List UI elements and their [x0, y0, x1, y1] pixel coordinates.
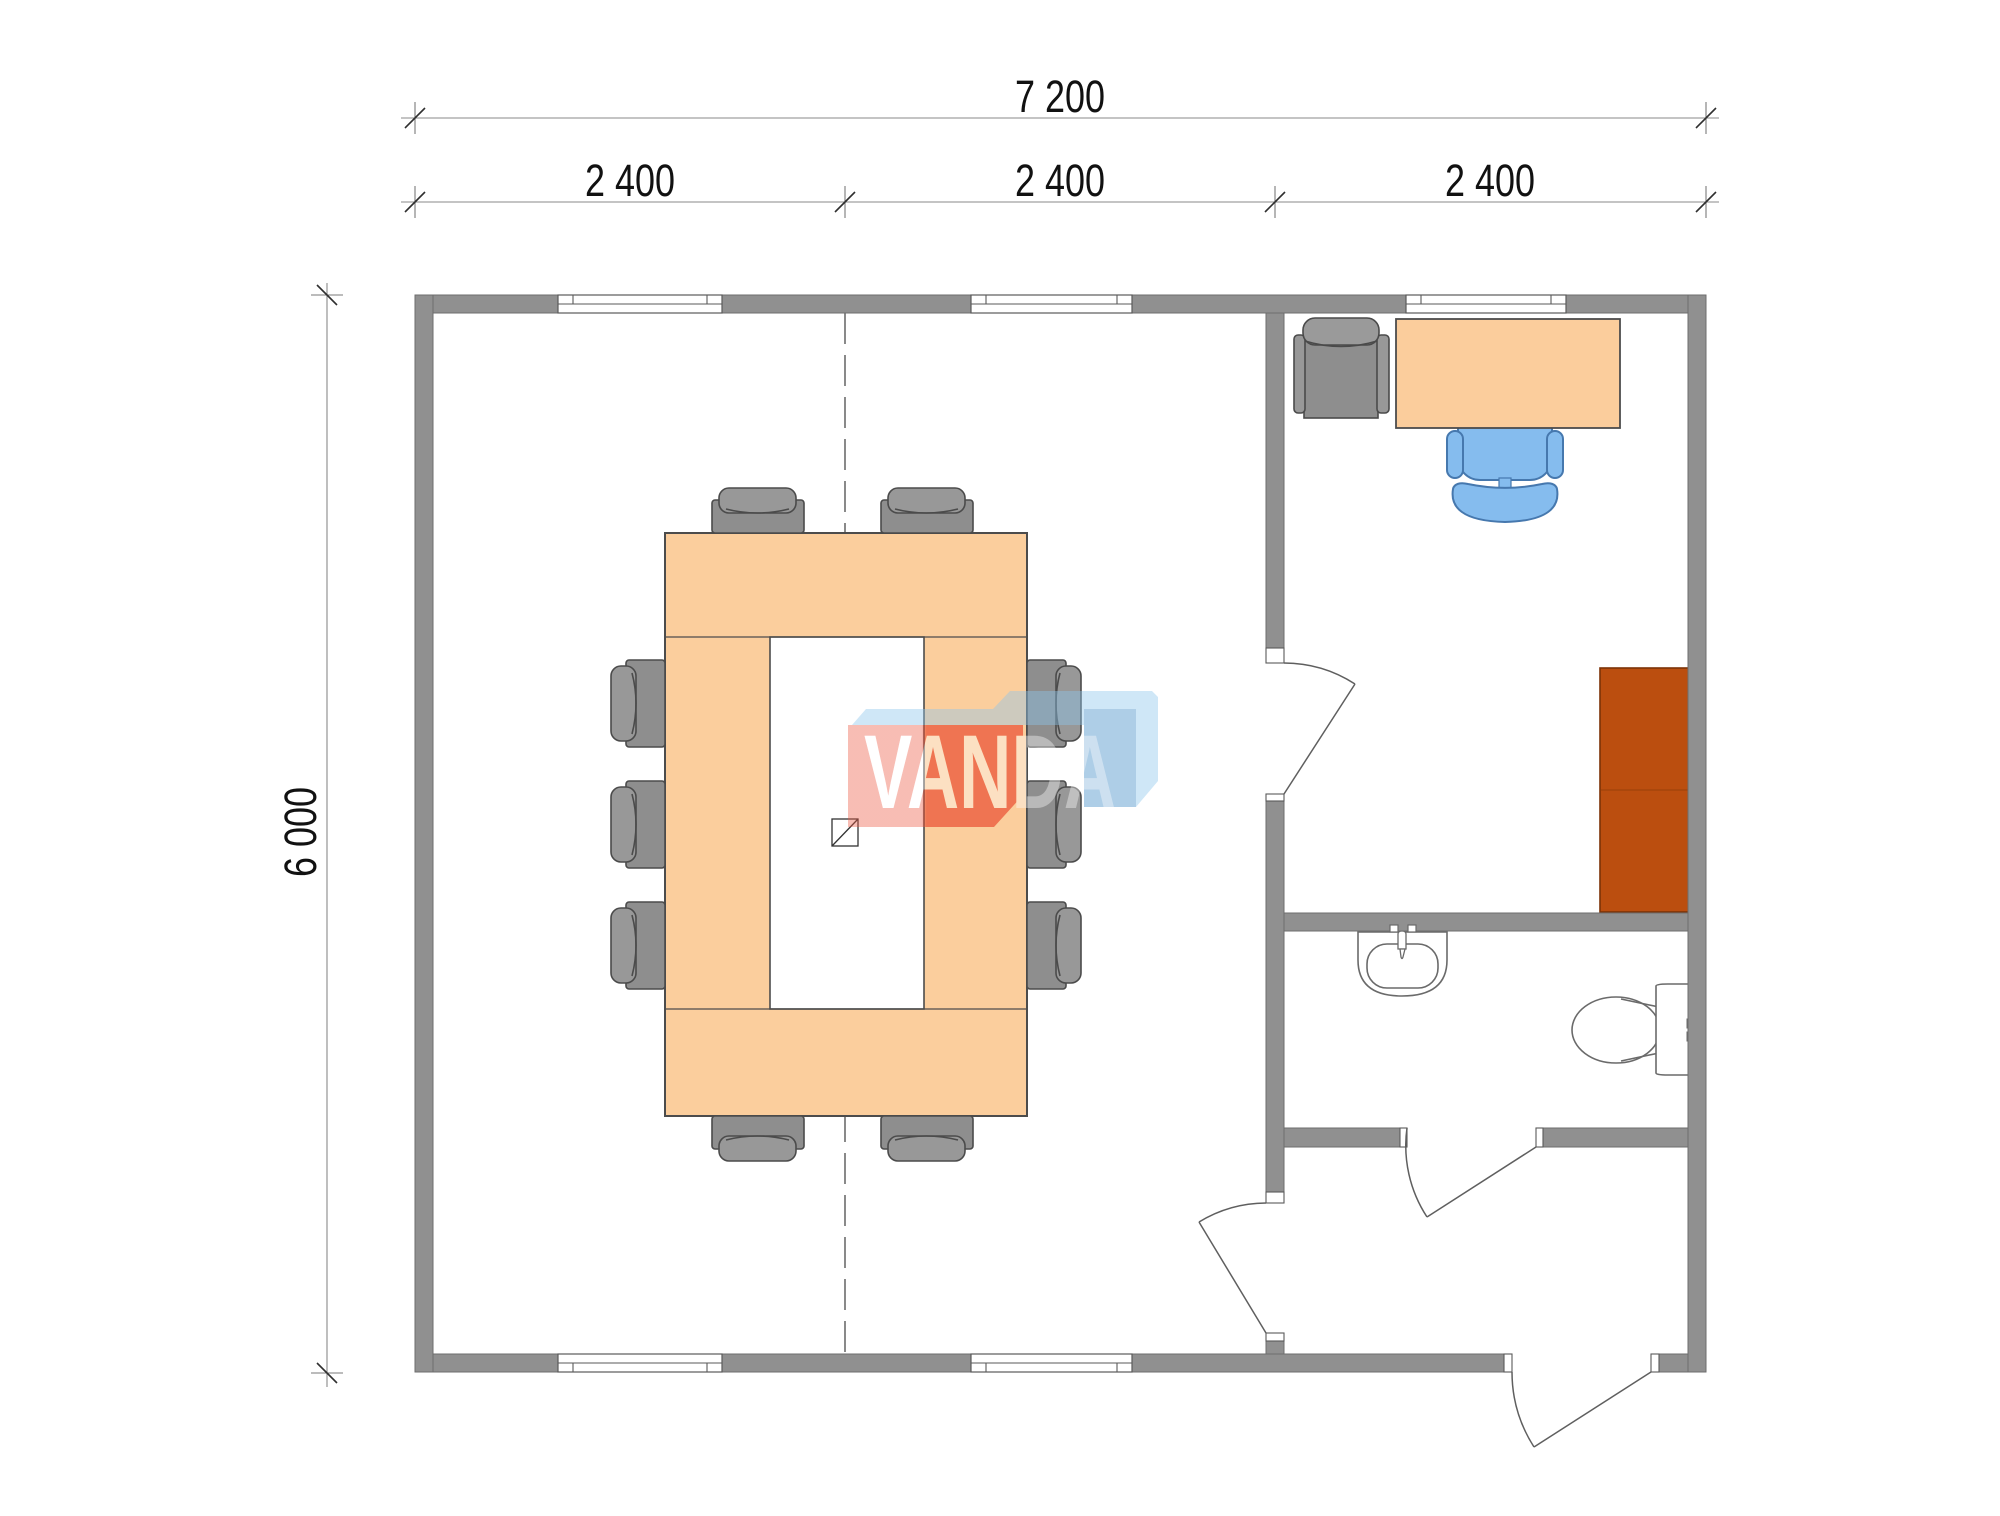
svg-text:VANDA: VANDA — [864, 714, 1116, 831]
svg-text:6 000: 6 000 — [275, 787, 326, 877]
svg-text:2 400: 2 400 — [1445, 155, 1535, 206]
svg-text:7 200: 7 200 — [1015, 71, 1105, 122]
svg-text:2 400: 2 400 — [1015, 155, 1105, 206]
svg-text:2 400: 2 400 — [585, 155, 675, 206]
